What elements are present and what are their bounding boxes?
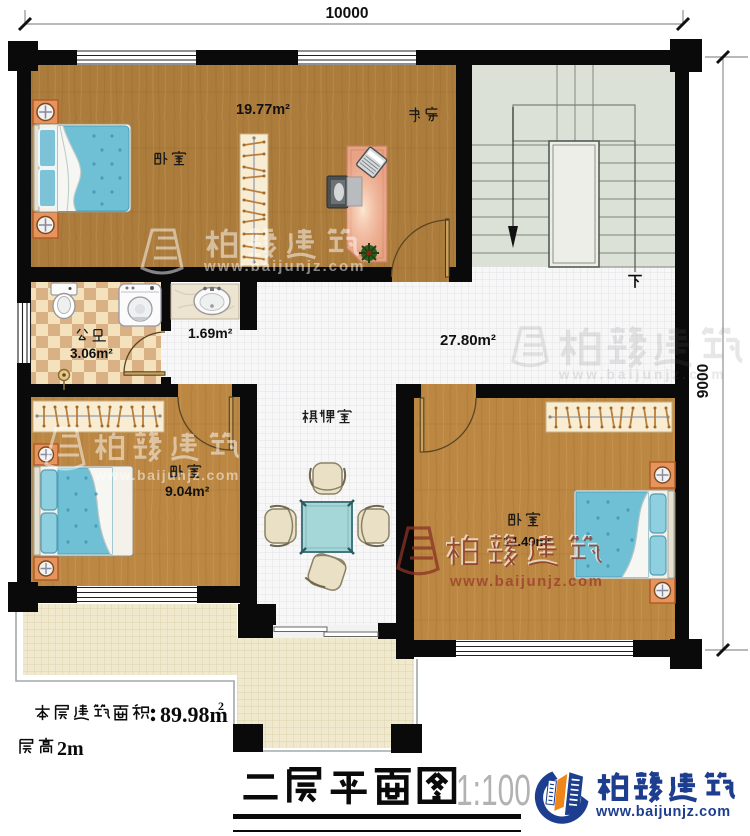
svg-text:www.baijunjz.com: www.baijunjz.com xyxy=(94,467,240,483)
svg-text:www.baijunjz.com: www.baijunjz.com xyxy=(449,573,603,590)
svg-text:19.77m²: 19.77m² xyxy=(236,102,290,118)
svg-text:www.baijunjz.com: www.baijunjz.com xyxy=(203,258,365,275)
svg-text:3.06m²: 3.06m² xyxy=(70,346,113,361)
svg-text:www.baijunjz.com: www.baijunjz.com xyxy=(595,804,731,820)
svg-text:27.80m²: 27.80m² xyxy=(440,332,496,349)
svg-text:1.69m²: 1.69m² xyxy=(188,325,233,341)
svg-text:2: 2 xyxy=(218,699,224,713)
svg-text:1:100: 1:100 xyxy=(456,765,531,814)
svg-text:9.04m²: 9.04m² xyxy=(165,483,210,499)
svg-text:9000: 9000 xyxy=(695,364,712,398)
svg-text:2m: 2m xyxy=(57,738,84,760)
svg-text:10000: 10000 xyxy=(325,5,368,22)
